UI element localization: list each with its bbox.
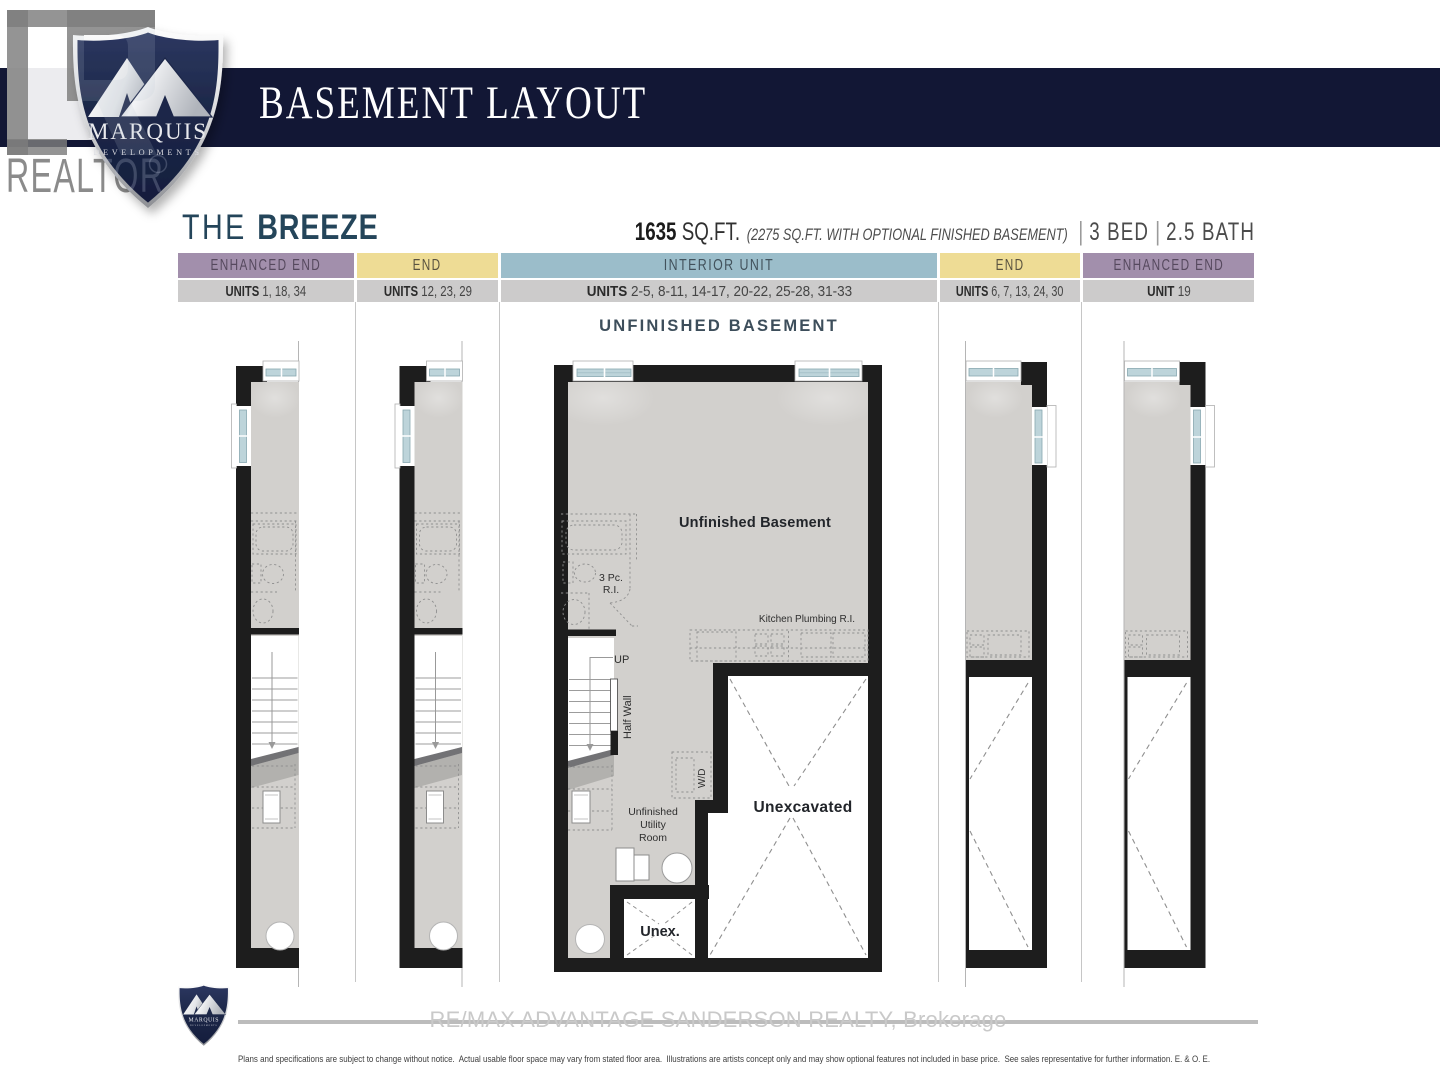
svg-text:Unex.: Unex. — [640, 924, 680, 940]
svg-text:R.I.: R.I. — [603, 584, 619, 596]
svg-text:Unfinished Basement: Unfinished Basement — [679, 515, 831, 531]
svg-text:Utility: Utility — [640, 819, 666, 831]
svg-text:DEVELOPMENTS: DEVELOPMENTS — [190, 1025, 217, 1027]
svg-text:UP: UP — [614, 654, 629, 666]
svg-text:3 Pc.: 3 Pc. — [599, 572, 623, 584]
svg-text:Kitchen Plumbing R.I.: Kitchen Plumbing R.I. — [759, 614, 855, 625]
svg-text:MARQUIS: MARQUIS — [189, 1017, 219, 1023]
svg-text:W/D: W/D — [697, 769, 708, 788]
svg-text:Unfinished: Unfinished — [628, 806, 678, 818]
svg-text:Unexcavated: Unexcavated — [754, 799, 853, 816]
svg-text:Room: Room — [639, 832, 667, 844]
svg-text:Half Wall: Half Wall — [622, 695, 634, 739]
